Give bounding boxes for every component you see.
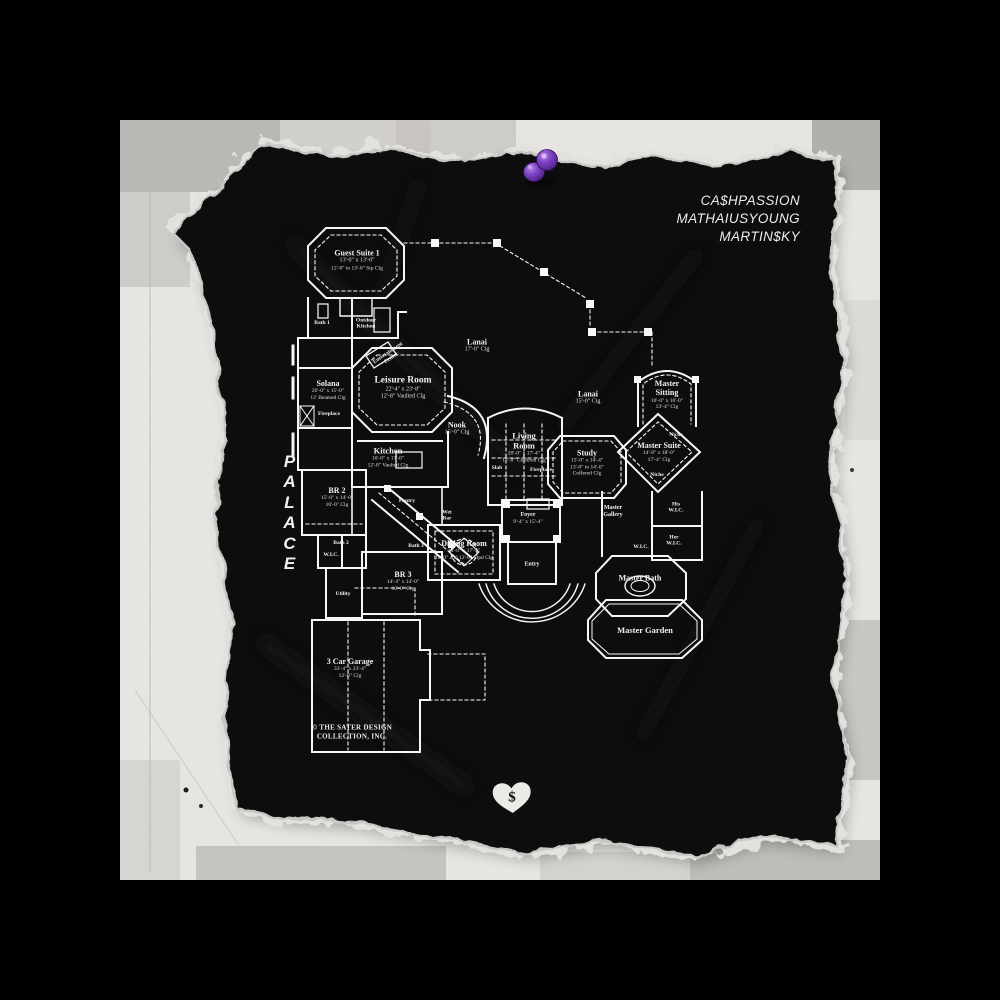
room-label-fireplace: Fireplace xyxy=(318,411,340,417)
room-name: Nook xyxy=(448,421,466,430)
room-ceiling: 12'-0" Clg xyxy=(339,673,362,679)
room-label-niche-2: Niche xyxy=(650,472,663,478)
room-name: Bath 3 xyxy=(408,543,423,549)
room-label-slab: Slab xyxy=(492,465,502,471)
room-ceiling: 12' Beamed Clg xyxy=(310,395,345,401)
room-name: Lanai xyxy=(467,338,487,347)
room-label-utility: Utility xyxy=(336,591,351,597)
room-label-leisure-room: Leisure Room 22'-4" x 23'-8" 12'-8" Vaul… xyxy=(374,375,431,400)
room-name: Solana xyxy=(316,379,339,388)
room-label-dining-room: Dining Room 14'-0" x 17'-4" 10'-0" and 1… xyxy=(435,539,493,561)
artist-name: MARTIN$KY xyxy=(677,228,800,246)
room-ceiling: 13'-4" Clg xyxy=(656,404,679,410)
room-name: BR 2 xyxy=(328,486,345,495)
room-label-lanai-right: Lanai 15'-0" Clg xyxy=(576,390,601,407)
room-label-kitchen: Kitchen 16'-0" x 17'-0" 12'-8" Vaulted C… xyxy=(368,446,409,469)
room-label-pantry: Pantry xyxy=(399,498,415,504)
room-ceiling: 17'-0" Clg xyxy=(465,347,490,354)
room-name: Lanai xyxy=(578,390,598,399)
room-name: Utility xyxy=(336,591,351,597)
room-ceiling: 17'-8" Coffered Clg xyxy=(502,457,545,463)
room-name: W.I.C. xyxy=(633,544,648,550)
room-label-fireplace-living: Fireplace xyxy=(530,467,552,473)
room-label-master-gallery: Master Gallery xyxy=(603,505,622,519)
room-ceiling: 15'-0" Clg xyxy=(576,399,601,406)
room-label-master-garden: Master Garden xyxy=(617,625,673,635)
room-name: Pantry xyxy=(399,498,415,504)
room-label-her-wic: Her W.I.C. xyxy=(666,535,681,548)
room-label-wet-bar: Wet Bar xyxy=(442,510,451,523)
room-name: Foyer xyxy=(520,512,535,519)
room-label-study: Study 15'-0" x 14'-4" 13'-0" to 14'-0" C… xyxy=(570,449,604,478)
album-title: PALACE xyxy=(283,452,296,574)
room-name: Master Garden xyxy=(617,625,673,635)
room-name: Niche xyxy=(669,432,682,438)
room-name: W.I.C. xyxy=(668,508,683,514)
room-name: Kitchen xyxy=(357,324,376,330)
room-name: Guest Suite 1 xyxy=(334,249,379,258)
room-name: Bath 1 xyxy=(314,320,329,326)
room-ceiling: 10'-0" and 12'-0" Stpd Clg xyxy=(435,555,493,561)
room-ceiling: Coffered Clg xyxy=(573,471,602,477)
room-name: BR 3 xyxy=(394,570,411,579)
room-label-wic-master: W.I.C. xyxy=(633,544,648,550)
artist-name: CA$HPASSION xyxy=(677,192,800,210)
room-name: Living Room xyxy=(501,431,547,451)
room-name: Entry xyxy=(525,561,540,568)
room-dimensions: 9'-4" x 15'-4" xyxy=(513,519,542,525)
room-label-garage: 3 Car Garage 33'-4" x 23'-4" 12'-0" Clg xyxy=(327,657,374,679)
room-name: Kitchen xyxy=(374,446,403,456)
room-label-entertainment-center: Entertainment Center xyxy=(372,341,408,371)
room-name: Fireplace xyxy=(318,411,340,417)
room-name: W.I.C. xyxy=(323,552,338,558)
room-name: 3 Car Garage xyxy=(327,657,374,666)
heart-dollar-symbol: $ xyxy=(508,790,516,807)
room-ceiling: 10'-0" Clg xyxy=(326,502,349,508)
copyright-line: COLLECTION, INC. xyxy=(312,733,392,742)
room-label-outdoor-kitchen: Outdoor Kitchen xyxy=(356,318,376,331)
room-name: W.I.C. xyxy=(666,541,681,547)
room-ceiling: 12'-8" Vaulted Clg xyxy=(368,462,409,468)
album-cover: CA$HPASSION MATHAIUSYOUNG MARTIN$KY PALA… xyxy=(0,0,1000,1000)
room-name: Master Suite xyxy=(637,441,681,450)
room-label-master-sitting: Master Sitting 10'-0" x 10'-0" 13'-4" Cl… xyxy=(648,379,686,411)
artist-credits: CA$HPASSION MATHAIUSYOUNG MARTIN$KY xyxy=(677,192,800,245)
room-label-niche: Niche xyxy=(669,432,682,438)
room-name: Master xyxy=(604,505,622,512)
room-name: Bath 2 xyxy=(333,540,348,546)
room-label-guest-suite: Guest Suite 1 13'-0" x 13'-0" 12'-0" to … xyxy=(331,249,383,272)
room-name: Niche xyxy=(650,472,663,478)
room-ceiling: 15'-0" Clg xyxy=(445,430,470,437)
room-name: Bar xyxy=(443,516,452,522)
room-name: Master Bath xyxy=(619,573,662,582)
room-label-bath-1: Bath 1 xyxy=(314,320,329,326)
room-label-lanai-upper: Lanai 17'-0" Clg xyxy=(465,338,490,355)
room-label-master-suite: Master Suite 14'-8" x 18'-0" 17'-4" Clg xyxy=(637,441,681,463)
room-ceiling: 12'-8" Vaulted Clg xyxy=(381,394,425,401)
room-label-foyer: Foyer 9'-4" x 15'-4" xyxy=(513,512,542,526)
room-label-br3: BR 3 14'-4" x 14'-0" 10'-0" Clg xyxy=(387,570,419,592)
room-label-wic-small: W.I.C. xyxy=(323,552,338,558)
room-label-his-wic: His W.I.C. xyxy=(668,502,683,515)
room-name: Slab xyxy=(492,465,502,471)
room-name: Master Sitting xyxy=(648,379,686,398)
room-name: Fireplace xyxy=(530,467,552,473)
room-label-living-room: Living Room 20'-0" x 17'-4" 17'-8" Coffe… xyxy=(501,431,547,464)
room-dimensions: 13'-0" x 13'-0" xyxy=(339,258,374,265)
room-label-nook: Nook 15'-0" Clg xyxy=(445,421,470,438)
room-label-bath-2: Bath 2 xyxy=(333,540,348,546)
room-name: Leisure Room xyxy=(374,375,431,386)
room-ceiling: 10'-0" Clg xyxy=(392,586,415,592)
room-name: Gallery xyxy=(603,512,622,519)
room-ceiling: 17'-4" Clg xyxy=(648,457,671,463)
artist-name: MATHAIUSYOUNG xyxy=(677,210,800,228)
copyright-notice: © THE SATER DESIGN COLLECTION, INC. xyxy=(312,724,392,743)
copyright-line: © THE SATER DESIGN xyxy=(312,724,392,733)
room-dimensions: 22'-4" x 23'-8" xyxy=(385,387,420,394)
room-label-master-bath: Master Bath xyxy=(619,573,662,582)
room-label-bath-3: Bath 3 xyxy=(408,543,423,549)
room-label-br2: BR 2 15'-0" x 14'-0" 10'-0" Clg xyxy=(321,486,353,508)
room-ceiling: 12'-0" to 13'-0" Stp Clg xyxy=(331,265,383,271)
room-name: Study xyxy=(577,449,597,458)
room-label-solana: Solana 20'-0" x 15'-0" 12' Beamed Clg xyxy=(310,379,345,401)
room-label-entry: Entry xyxy=(525,561,540,568)
floor-plan-labels: CA$HPASSION MATHAIUSYOUNG MARTIN$KY PALA… xyxy=(0,0,1000,1000)
room-name: Dining Room xyxy=(441,539,487,548)
